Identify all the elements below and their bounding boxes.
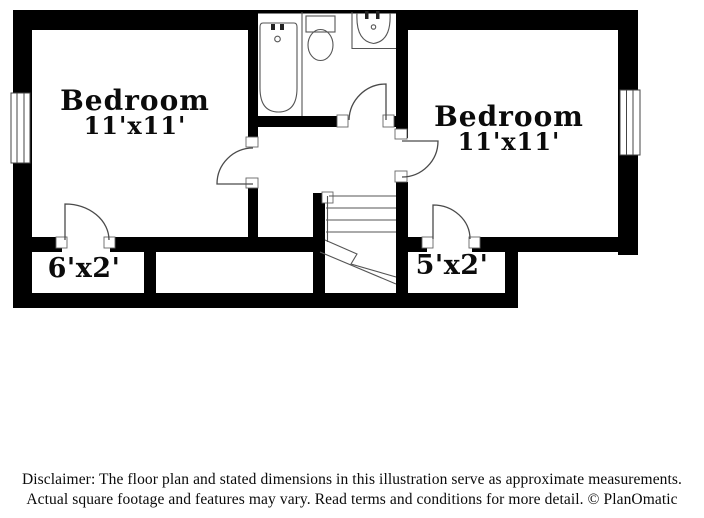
sink-faucet (376, 11, 380, 19)
jamb (395, 129, 407, 139)
floor-plan-drawing: Bedroom 11'x11' Bedroom 11'x11' 6'x2' 5'… (0, 0, 704, 340)
door-bathroom (349, 84, 386, 120)
wall-top-right (400, 10, 638, 30)
wall-bathroom-south (253, 116, 338, 127)
wall-bottom-lowest (13, 293, 518, 308)
wall-hall-west-lower (248, 183, 258, 252)
jamb (469, 237, 480, 248)
wall-stairs-east (396, 182, 408, 295)
sink-faucet (365, 11, 369, 19)
sink-drain (371, 25, 375, 29)
door-closet-right (433, 205, 470, 239)
staircase (320, 196, 396, 284)
sink-basin (357, 13, 390, 44)
jamb (246, 178, 258, 188)
wall-bottom-seg2 (110, 237, 315, 252)
wall-closet-right-east (505, 250, 518, 295)
wall-closet-left-east (144, 250, 156, 295)
floor-plan: Bedroom 11'x11' Bedroom 11'x11' 6'x2' 5'… (0, 0, 704, 340)
wall-stairs-west (313, 193, 325, 295)
window-right (620, 90, 640, 155)
disclaimer: Disclaimer: The floor plan and stated di… (0, 470, 704, 510)
bathtub-drain (275, 36, 281, 42)
window-left (11, 93, 30, 163)
disclaimer-line-1: Disclaimer: The floor plan and stated di… (0, 470, 704, 490)
closet-right-dims: 5'x2' (416, 250, 489, 281)
toilet-bowl (308, 30, 333, 61)
jamb (246, 137, 258, 147)
closet-left-dims: 6'x2' (48, 253, 121, 284)
jamb (337, 115, 348, 127)
bathtub-faucet (271, 24, 275, 30)
jamb (383, 115, 394, 127)
wall-top-left (13, 10, 255, 30)
bathtub-faucet (280, 24, 284, 30)
door-closet-left (65, 204, 109, 240)
bedroom-left-dims: 11'x11' (84, 111, 187, 140)
wall-bathroom-south-stub (393, 116, 408, 127)
bedroom-right-dims: 11'x11' (458, 127, 561, 156)
wall-bottom-seg1 (13, 237, 62, 252)
jamb (422, 237, 433, 248)
disclaimer-line-2: Actual square footage and features may v… (0, 490, 704, 510)
bathroom-fixtures (260, 11, 396, 116)
wall-bottom-seg4 (472, 237, 638, 252)
stair-break-line-lower (320, 252, 396, 284)
